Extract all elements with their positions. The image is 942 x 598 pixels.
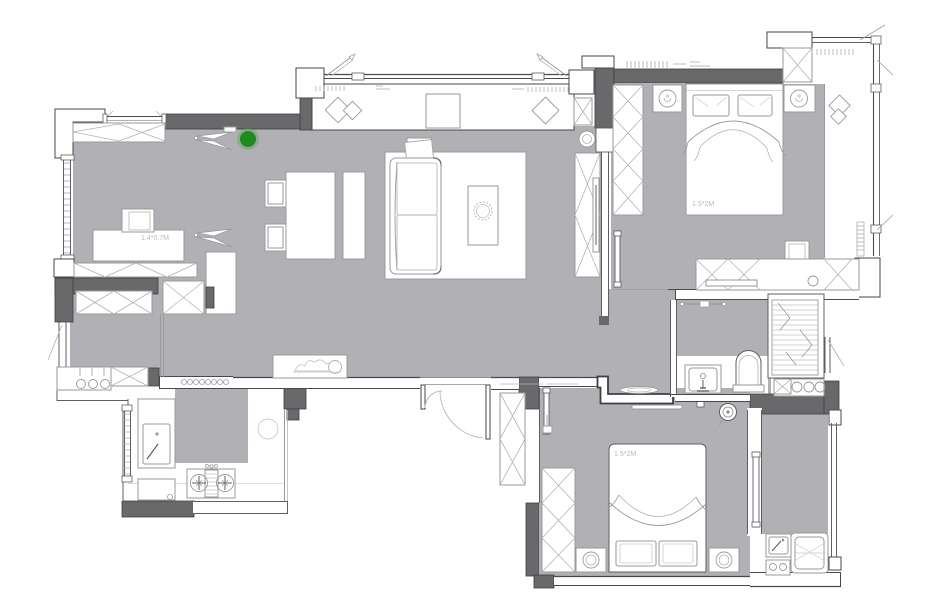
svg-text:1.4*0.7M: 1.4*0.7M <box>141 235 169 242</box>
svg-text:1.5*2M: 1.5*2M <box>692 201 714 208</box>
svg-text:1.5*2M: 1.5*2M <box>614 451 636 458</box>
